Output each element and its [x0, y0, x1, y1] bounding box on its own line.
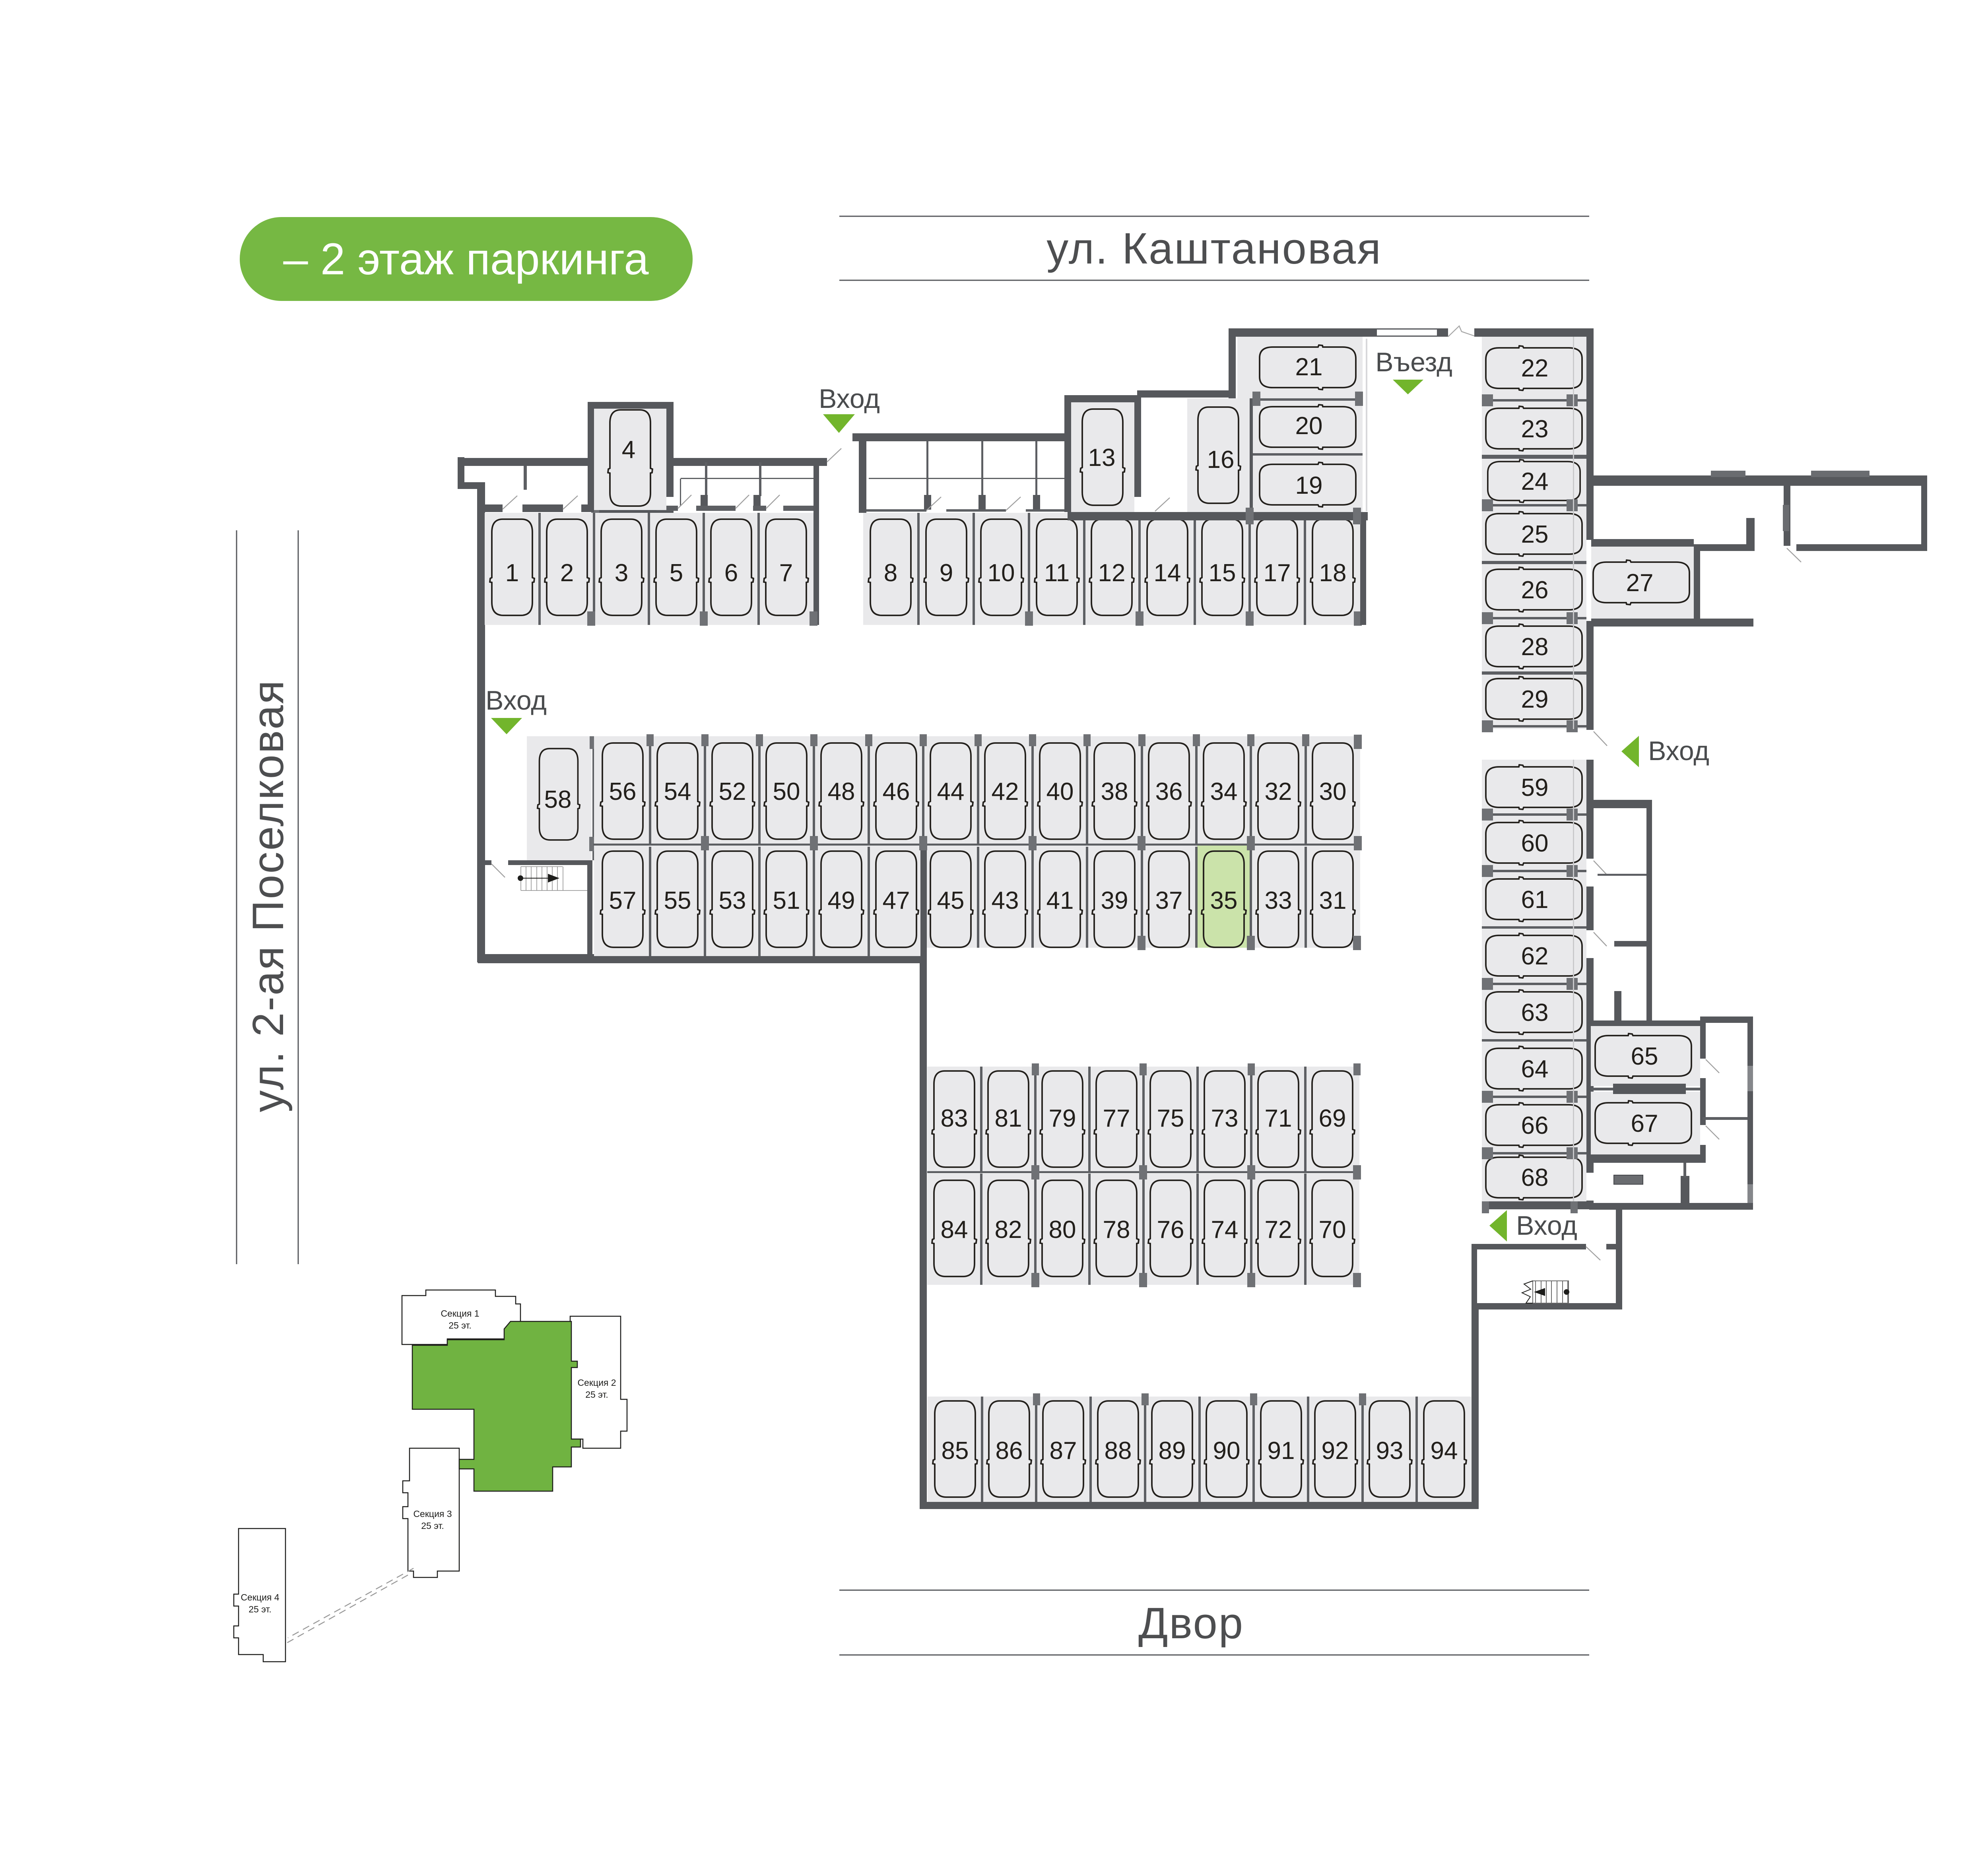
svg-text:15: 15 [1209, 559, 1236, 587]
svg-text:7: 7 [779, 559, 793, 587]
svg-text:20: 20 [1295, 412, 1323, 440]
svg-text:1: 1 [505, 559, 519, 587]
svg-text:59: 59 [1521, 774, 1549, 801]
svg-text:18: 18 [1319, 559, 1347, 587]
svg-text:Секция 2: Секция 2 [577, 1377, 616, 1388]
svg-text:46: 46 [883, 778, 910, 805]
svg-text:85: 85 [942, 1437, 969, 1465]
svg-text:5: 5 [670, 559, 683, 587]
svg-text:Секция 4: Секция 4 [241, 1592, 279, 1602]
svg-text:32: 32 [1265, 778, 1292, 805]
svg-text:71: 71 [1265, 1105, 1292, 1132]
svg-text:23: 23 [1521, 415, 1549, 443]
svg-text:88: 88 [1105, 1437, 1132, 1465]
svg-text:42: 42 [992, 778, 1019, 805]
svg-text:58: 58 [544, 786, 572, 813]
svg-text:25: 25 [1521, 521, 1549, 548]
svg-text:27: 27 [1626, 569, 1654, 597]
svg-text:Вход: Вход [819, 384, 880, 414]
svg-text:17: 17 [1264, 559, 1291, 587]
svg-text:43: 43 [992, 887, 1019, 914]
svg-text:– 2 этаж паркинга: – 2 этаж паркинга [283, 234, 649, 284]
svg-text:65: 65 [1631, 1043, 1658, 1070]
svg-text:2: 2 [560, 559, 574, 587]
svg-text:37: 37 [1155, 887, 1183, 914]
svg-text:39: 39 [1101, 887, 1128, 914]
svg-text:49: 49 [828, 887, 855, 914]
svg-text:4: 4 [622, 436, 635, 464]
svg-text:11: 11 [1044, 559, 1070, 587]
svg-text:19: 19 [1295, 472, 1323, 499]
svg-text:69: 69 [1319, 1105, 1346, 1132]
svg-text:6: 6 [724, 559, 738, 587]
svg-text:86: 86 [996, 1437, 1023, 1465]
svg-text:56: 56 [609, 778, 637, 805]
svg-text:94: 94 [1431, 1437, 1458, 1465]
svg-text:16: 16 [1207, 446, 1235, 473]
svg-text:60: 60 [1521, 830, 1549, 857]
svg-text:44: 44 [937, 778, 965, 805]
svg-text:25 эт.: 25 эт. [421, 1521, 444, 1531]
svg-text:84: 84 [941, 1216, 968, 1243]
svg-text:53: 53 [719, 887, 746, 914]
svg-text:25 эт.: 25 эт. [585, 1389, 608, 1400]
svg-text:22: 22 [1521, 355, 1549, 382]
svg-text:12: 12 [1098, 559, 1126, 587]
svg-text:90: 90 [1213, 1437, 1241, 1465]
svg-text:70: 70 [1319, 1216, 1346, 1243]
svg-text:3: 3 [615, 559, 628, 587]
svg-text:51: 51 [773, 887, 800, 914]
svg-text:80: 80 [1049, 1216, 1076, 1243]
svg-text:79: 79 [1049, 1105, 1076, 1132]
svg-text:92: 92 [1322, 1437, 1349, 1465]
svg-text:47: 47 [883, 887, 910, 914]
svg-text:45: 45 [937, 887, 965, 914]
svg-text:24: 24 [1521, 468, 1549, 495]
svg-text:62: 62 [1521, 943, 1549, 970]
svg-text:35: 35 [1210, 887, 1238, 914]
svg-text:76: 76 [1157, 1216, 1184, 1243]
svg-text:34: 34 [1210, 778, 1238, 805]
svg-text:33: 33 [1265, 887, 1292, 914]
svg-text:29: 29 [1521, 686, 1549, 713]
svg-text:48: 48 [828, 778, 855, 805]
svg-text:54: 54 [664, 778, 691, 805]
svg-text:ул. 2-ая Поселковая: ул. 2-ая Поселковая [244, 679, 293, 1112]
svg-text:68: 68 [1521, 1164, 1549, 1191]
svg-text:25 эт.: 25 эт. [248, 1604, 272, 1614]
svg-text:89: 89 [1159, 1437, 1186, 1465]
svg-text:91: 91 [1268, 1437, 1295, 1465]
svg-text:77: 77 [1103, 1105, 1130, 1132]
svg-text:74: 74 [1211, 1216, 1239, 1243]
svg-text:67: 67 [1631, 1110, 1658, 1137]
svg-text:Двор: Двор [1138, 1599, 1244, 1648]
svg-text:31: 31 [1319, 887, 1347, 914]
svg-text:10: 10 [988, 559, 1015, 587]
svg-text:78: 78 [1103, 1216, 1130, 1243]
svg-text:13: 13 [1088, 444, 1116, 471]
svg-text:41: 41 [1046, 887, 1074, 914]
svg-text:61: 61 [1521, 886, 1549, 914]
svg-text:40: 40 [1046, 778, 1074, 805]
svg-text:Въезд: Въезд [1375, 347, 1452, 377]
svg-text:50: 50 [773, 778, 800, 805]
svg-text:83: 83 [941, 1105, 968, 1132]
svg-text:72: 72 [1265, 1216, 1292, 1243]
svg-text:36: 36 [1155, 778, 1183, 805]
svg-text:38: 38 [1101, 778, 1128, 805]
svg-text:87: 87 [1050, 1437, 1077, 1465]
svg-text:14: 14 [1154, 559, 1181, 587]
svg-text:81: 81 [995, 1105, 1022, 1132]
svg-text:57: 57 [609, 887, 637, 914]
svg-text:55: 55 [664, 887, 691, 914]
svg-text:93: 93 [1376, 1437, 1404, 1465]
svg-text:25 эт.: 25 эт. [448, 1320, 472, 1331]
svg-text:9: 9 [940, 559, 953, 587]
svg-text:Вход: Вход [1648, 736, 1709, 766]
svg-text:Вход: Вход [1516, 1210, 1577, 1241]
svg-text:63: 63 [1521, 999, 1549, 1026]
svg-text:28: 28 [1521, 633, 1549, 661]
svg-text:66: 66 [1521, 1112, 1549, 1139]
svg-text:Секция 3: Секция 3 [413, 1509, 452, 1519]
svg-text:Секция 1: Секция 1 [441, 1308, 479, 1319]
svg-text:73: 73 [1211, 1105, 1239, 1132]
svg-text:21: 21 [1295, 353, 1323, 381]
svg-text:52: 52 [719, 778, 746, 805]
svg-text:26: 26 [1521, 576, 1549, 604]
svg-text:8: 8 [884, 559, 897, 587]
svg-text:ул. Каштановая: ул. Каштановая [1046, 224, 1382, 273]
svg-text:82: 82 [995, 1216, 1022, 1243]
svg-text:30: 30 [1319, 778, 1347, 805]
svg-text:Вход: Вход [485, 685, 547, 716]
svg-text:64: 64 [1521, 1055, 1549, 1083]
svg-text:75: 75 [1157, 1105, 1184, 1132]
